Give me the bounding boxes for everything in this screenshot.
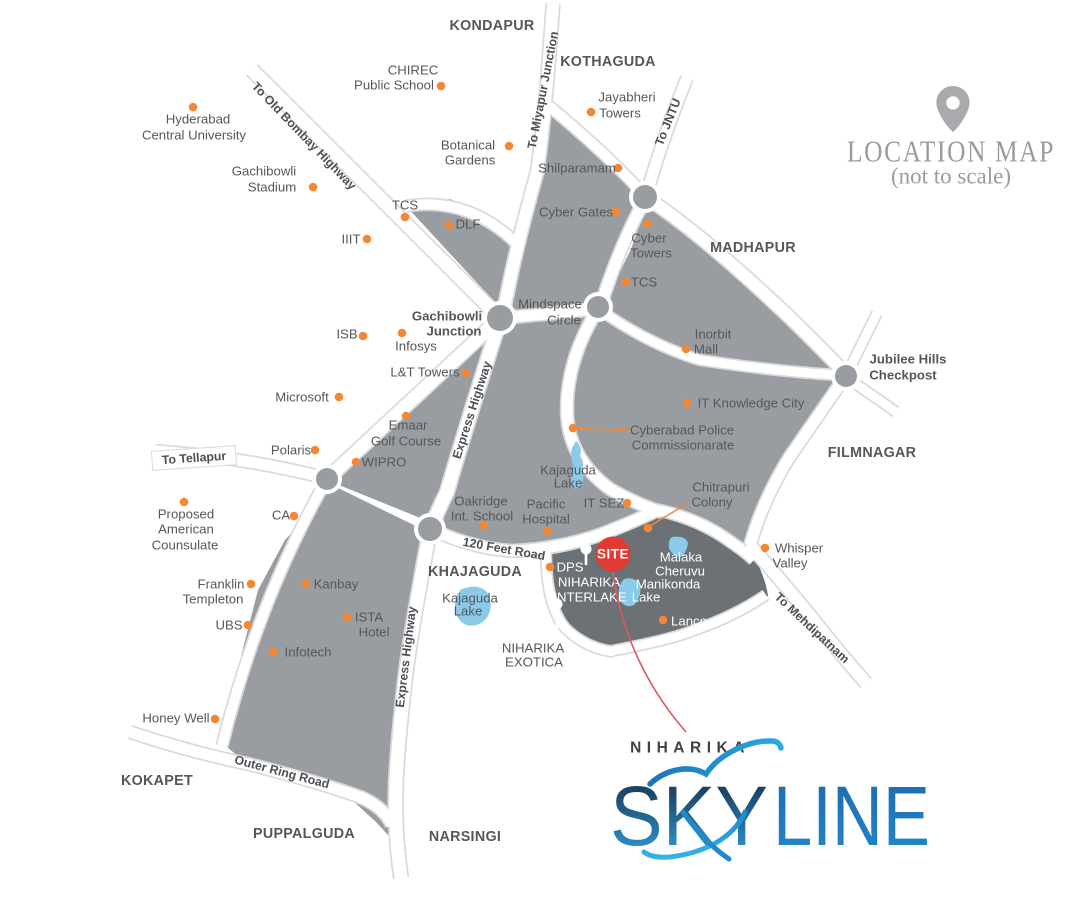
- road-label-to-jntu: To JNTU: [652, 96, 684, 147]
- kanbay-dot: [302, 580, 311, 589]
- botanical-gardens-label-1: Botanical: [441, 138, 495, 153]
- iiit-label: IIIT: [341, 232, 360, 247]
- gachibowli-stadium-dot: [309, 183, 318, 192]
- chitrapuri-colony-label-1: Chitrapuri: [692, 480, 749, 495]
- dps-dot: [546, 563, 555, 572]
- iiit-dot: [363, 235, 372, 244]
- location-map-stage: HyderabadCentral UniversityGachibowliSta…: [0, 0, 1065, 902]
- area-label-kondapur: KONDAPUR: [449, 18, 534, 34]
- wipro-dot: [352, 458, 361, 467]
- niharika-exotica-marker: [552, 599, 563, 610]
- mindspace-circle-label-2: Circle: [547, 313, 581, 328]
- site-badge: SITE: [596, 537, 631, 572]
- ca-label: CA: [272, 508, 291, 523]
- proposed-american-counsulate-label-3: Counsulate: [152, 538, 219, 553]
- site-label: SITE: [597, 547, 629, 562]
- dlf-label: DLF: [456, 217, 481, 232]
- dlf-dot: [445, 221, 454, 230]
- legend-subtitle: (not to scale): [891, 164, 1011, 189]
- infosys-dot: [398, 329, 407, 338]
- cyber-gates-label: Cyber Gates: [539, 205, 613, 220]
- area-label-puppalguda: PUPPALGUDA: [253, 826, 355, 842]
- hyderabad-central-university-label-2: Central University: [142, 128, 246, 143]
- location-map-svg: HyderabadCentral UniversityGachibowliSta…: [0, 0, 1065, 902]
- oakridge-int-school-label-2: Int. School: [451, 509, 513, 524]
- botanical-gardens-label-2: Gardens: [445, 153, 496, 168]
- franklin-templeton-dot: [247, 580, 256, 589]
- niharika-exotica-label-2: EXOTICA: [505, 655, 563, 670]
- junction-wipro: [316, 468, 338, 490]
- jayabheri-towers-label-2: Towers: [599, 106, 641, 121]
- franklin-templeton-label-2: Templeton: [183, 592, 244, 607]
- ubs-dot: [244, 621, 253, 630]
- ista-hotel-label-2: Hotel: [359, 625, 390, 640]
- microsoft-label: Microsoft: [275, 390, 329, 405]
- emaar-golf-course-label-2: Golf Course: [371, 434, 441, 449]
- cyber-towers-label-2: Towers: [630, 246, 672, 261]
- jubilee-hills-checkpost-label-1: Jubilee Hills: [870, 352, 947, 367]
- chirec-public-school-dot: [437, 82, 446, 91]
- proposed-american-counsulate-dot: [180, 498, 189, 507]
- ca-dot: [290, 512, 299, 521]
- infotech-dot: [269, 648, 278, 657]
- dps-label: DPS: [556, 560, 583, 575]
- chitrapuri-colony-label-2: Colony: [691, 495, 732, 510]
- shilparamam-label: Shilparamam: [538, 161, 616, 176]
- junction-kothaguda: [633, 185, 657, 209]
- cyberabad-police-commissionarate-label-1: Cyberabad Police: [630, 423, 734, 438]
- ubs-label: UBS: [215, 618, 242, 633]
- junction-gachibowli: [487, 305, 513, 331]
- area-label-filmnagar: FILMNAGAR: [828, 445, 917, 461]
- inorbit-mall-dot: [682, 345, 691, 354]
- infotech-label: Infotech: [285, 645, 332, 660]
- junction-mindspace: [587, 296, 609, 318]
- area-label-kokapet: KOKAPET: [121, 773, 193, 789]
- kajaguda-lake-west-label-2: Lake: [454, 604, 483, 619]
- whisper-valley-dot: [761, 544, 770, 553]
- gachibowli-junction-label-2: Junction: [427, 324, 482, 339]
- isb-label: ISB: [336, 327, 357, 342]
- honey-well-label: Honey Well: [142, 711, 209, 726]
- it-knowledge-city-label: IT Knowledge City: [698, 396, 805, 411]
- junction-jubilee-hills: [835, 365, 857, 387]
- pacific-hospital-dot: [543, 527, 552, 536]
- tcs-kondapur-dot: [401, 213, 410, 222]
- tcs-madhapur-dot: [622, 278, 631, 287]
- franklin-templeton-label-1: Franklin: [198, 577, 245, 592]
- ista-hotel-label-1: ISTA: [355, 610, 384, 625]
- polaris-dot: [311, 446, 320, 455]
- cyberabad-police-commissionarate-dot: [569, 424, 578, 433]
- location-pin-icon: [936, 86, 969, 132]
- area-label-narsingi: NARSINGI: [429, 829, 501, 845]
- wipro-label: WIPRO: [362, 455, 407, 470]
- inorbit-mall-label-2: Mall: [694, 342, 718, 357]
- inorbit-mall-label-1: Inorbit: [695, 327, 732, 342]
- infosys-label: Infosys: [395, 339, 437, 354]
- niharika-skyline-logo: NIHARIKA SKY LINE: [610, 740, 930, 864]
- area-label-khajaguda: KHAJAGUDA: [428, 564, 522, 580]
- kajaguda-lake-central-label-2: Lake: [554, 476, 583, 491]
- whisper-valley-label-1: Whisper: [775, 541, 824, 556]
- logo-line-text: LINE: [773, 769, 930, 863]
- proposed-american-counsulate-label-1: Proposed: [158, 507, 214, 522]
- area-label-kothaguda: KOTHAGUDA: [560, 54, 656, 70]
- chitrapuri-colony-dot: [644, 524, 653, 533]
- chirec-public-school-label-1: CHIREC: [388, 63, 439, 78]
- cyber-towers-dot: [643, 220, 652, 229]
- cyber-towers-label-1: Cyber: [631, 231, 667, 246]
- tcs-kondapur-label: TCS: [392, 198, 419, 213]
- pacific-hospital-label-2: Hospital: [522, 512, 570, 527]
- lt-towers-dot: [462, 369, 471, 378]
- emaar-golf-course-label-1: Emaar: [389, 418, 428, 433]
- whisper-valley-label-2: Valley: [773, 556, 808, 571]
- gachibowli-junction-label-1: Gachibowli: [412, 309, 482, 324]
- legend: LOCATION MAP (not to scale): [847, 86, 1055, 189]
- honey-well-dot: [211, 715, 220, 724]
- hyderabad-central-university-label-1: Hyderabad: [166, 112, 231, 127]
- jubilee-hills-checkpost-label-2: Checkpost: [869, 368, 937, 383]
- lanco-label: Lanco: [671, 614, 707, 629]
- isb-dot: [359, 332, 368, 341]
- ista-hotel-dot: [343, 613, 352, 622]
- gachibowli-stadium-label-1: Gachibowli: [232, 164, 297, 179]
- chirec-public-school-label-2: Public School: [354, 78, 434, 93]
- cyberabad-police-commissionarate-label-2: Commissionarate: [632, 438, 735, 453]
- niharika-interlake-marker: [581, 544, 592, 555]
- road-label-to-mehdipatnam: To Mehdipatnam: [772, 590, 852, 666]
- junction-khajaguda: [418, 517, 442, 541]
- oakridge-int-school-label-1: Oakridge: [454, 494, 508, 509]
- manikonda-lake-label-2: Lake: [632, 590, 661, 605]
- it-knowledge-city-dot: [683, 399, 692, 408]
- microsoft-dot: [335, 393, 344, 402]
- lanco-dot: [659, 616, 668, 625]
- area-label-madhapur: MADHAPUR: [710, 240, 796, 256]
- lt-towers-label: L&T Towers: [390, 365, 460, 380]
- jayabheri-towers-label-1: Jayabheri: [598, 90, 655, 105]
- gachibowli-stadium-label-2: Stadium: [248, 180, 296, 195]
- tcs-madhapur-label: TCS: [631, 275, 658, 290]
- pacific-hospital-label-1: Pacific: [527, 497, 566, 512]
- jayabheri-towers-dot: [587, 108, 596, 117]
- malaka-cheruvu-label-1: Malaka: [660, 550, 703, 565]
- polaris-label: Polaris: [271, 443, 312, 458]
- mindspace-circle-label-1: Mindspace: [518, 297, 582, 312]
- it-sez-label: IT SEZ: [584, 496, 625, 511]
- kanbay-label: Kanbay: [314, 577, 359, 592]
- botanical-gardens-dot: [505, 142, 514, 151]
- niharika-interlake-label-1: NIHARIKA: [558, 575, 620, 590]
- hyderabad-central-university-dot: [189, 103, 198, 112]
- proposed-american-counsulate-label-2: American: [158, 522, 214, 537]
- niharika-exotica-label-1: NIHARIKA: [502, 641, 564, 656]
